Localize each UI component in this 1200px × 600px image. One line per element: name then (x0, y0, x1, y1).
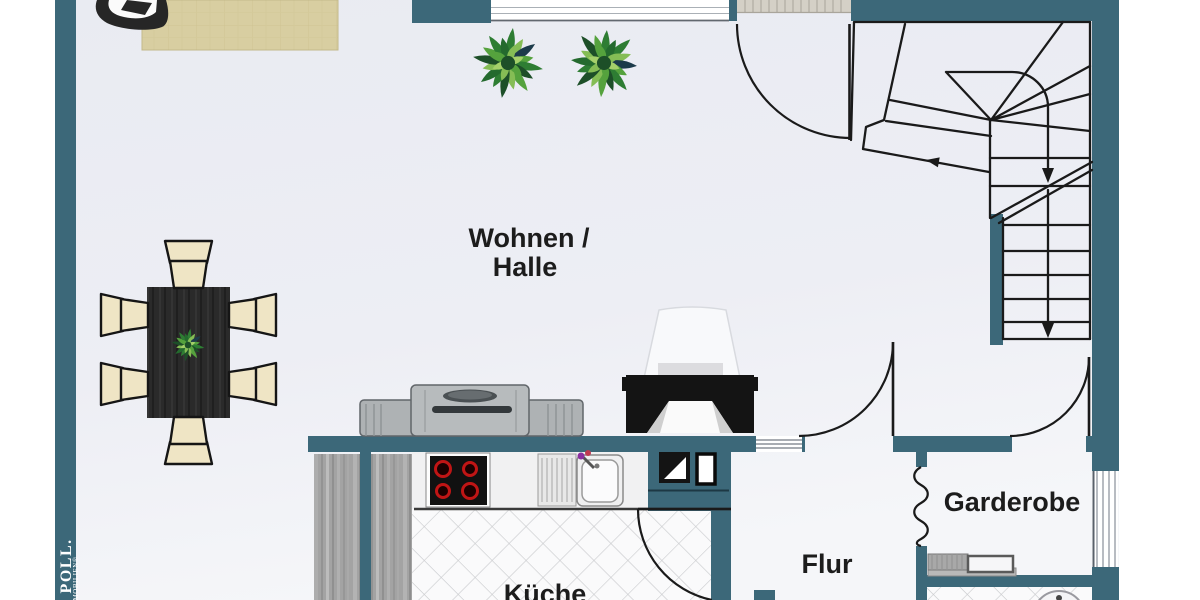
svg-text:Küche: Küche (504, 579, 587, 600)
svg-text:Halle: Halle (493, 252, 558, 282)
svg-text:Flur: Flur (802, 549, 853, 579)
svg-text:Garderobe: Garderobe (944, 487, 1081, 517)
svg-text:IMMOBILIEN®: IMMOBILIEN® (72, 556, 80, 600)
svg-text:Wohnen /: Wohnen / (469, 223, 590, 253)
